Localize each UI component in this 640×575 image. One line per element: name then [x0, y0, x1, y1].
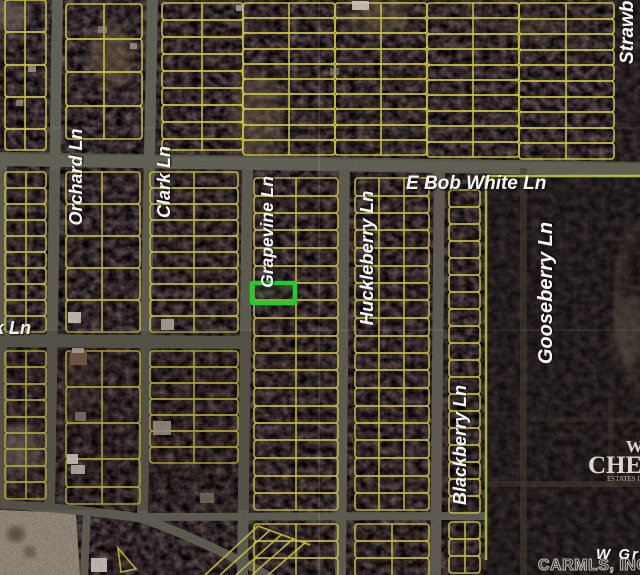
svg-text:ak Ln: ak Ln [0, 318, 31, 338]
svg-text:Huckleberry Ln: Huckleberry Ln [356, 191, 377, 326]
svg-text:Orchard Ln: Orchard Ln [66, 128, 86, 225]
svg-text:CARMLS, INC: CARMLS, INC [538, 557, 640, 574]
svg-text:ESTATES IN: ESTATES IN [607, 475, 640, 483]
svg-text:Grapevine Ln: Grapevine Ln [257, 176, 277, 288]
svg-text:E Bob White Ln: E Bob White Ln [406, 173, 546, 194]
svg-text:Strawberry Ln: Strawberry Ln [617, 0, 638, 64]
svg-text:Gooseberry Ln: Gooseberry Ln [535, 222, 557, 364]
svg-text:Clark Ln: Clark Ln [154, 146, 174, 218]
svg-text:Blackberry Ln: Blackberry Ln [450, 385, 470, 505]
